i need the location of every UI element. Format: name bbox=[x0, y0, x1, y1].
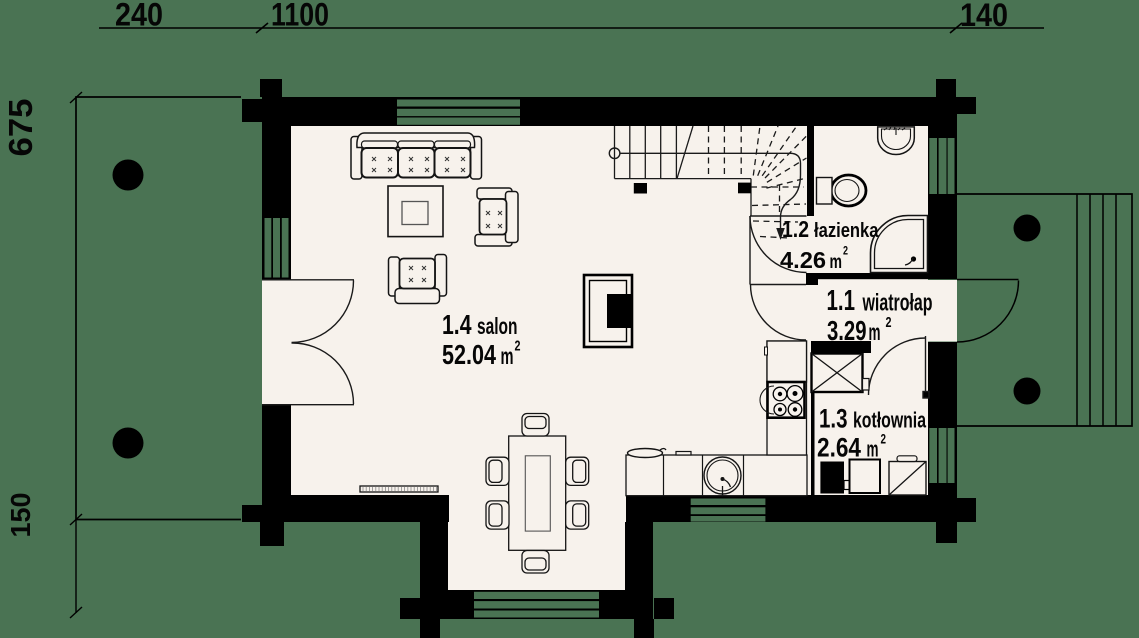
svg-text:52.04: 52.04 bbox=[442, 339, 496, 370]
svg-text:kotłownia: kotłownia bbox=[853, 408, 927, 433]
svg-text:2.64: 2.64 bbox=[817, 433, 861, 463]
svg-text:m: m bbox=[501, 343, 514, 369]
svg-text:salon: salon bbox=[477, 313, 518, 339]
svg-text:4.26: 4.26 bbox=[780, 247, 826, 273]
svg-text:1.4: 1.4 bbox=[442, 309, 472, 340]
svg-text:140: 140 bbox=[960, 0, 1008, 33]
svg-text:1.3: 1.3 bbox=[819, 404, 848, 434]
svg-text:m: m bbox=[830, 252, 843, 273]
svg-text:2: 2 bbox=[843, 244, 848, 258]
svg-text:m: m bbox=[869, 319, 881, 345]
svg-text:1.2: 1.2 bbox=[782, 216, 809, 242]
svg-text:2: 2 bbox=[881, 431, 887, 447]
svg-text:1.1: 1.1 bbox=[827, 285, 856, 317]
svg-text:łazienka: łazienka bbox=[814, 220, 879, 242]
svg-text:3.29: 3.29 bbox=[827, 315, 867, 346]
svg-text:wiatrołap: wiatrołap bbox=[862, 290, 933, 317]
svg-text:1100: 1100 bbox=[271, 0, 329, 33]
svg-text:240: 240 bbox=[115, 0, 163, 33]
svg-text:m: m bbox=[867, 437, 879, 462]
svg-text:2: 2 bbox=[886, 314, 892, 331]
svg-text:2: 2 bbox=[515, 338, 521, 355]
svg-text:150: 150 bbox=[5, 493, 36, 538]
svg-text:675: 675 bbox=[2, 99, 39, 157]
